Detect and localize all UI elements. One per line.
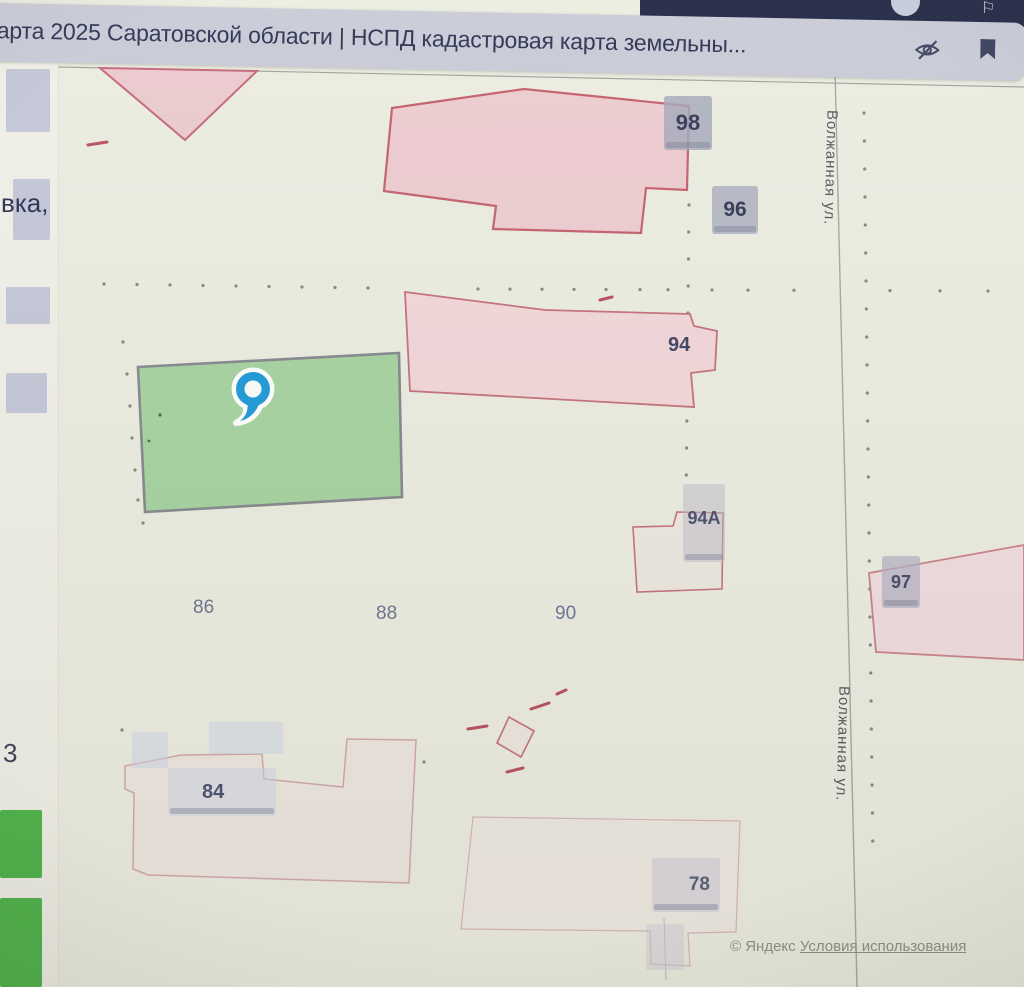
map-speck [148, 440, 151, 443]
tab-title: карта 2025 Саратовской области | НСПД ка… [0, 17, 877, 61]
panel-text-fragment: 3 [3, 738, 17, 769]
building-94a[interactable]: 94А [683, 484, 725, 562]
map-speck [158, 413, 161, 416]
panel-item-placeholder[interactable] [6, 69, 50, 132]
bookmark-icon[interactable] [980, 39, 995, 59]
building-84[interactable]: 84 [168, 768, 276, 816]
building-78[interactable]: 78 [652, 858, 720, 912]
building-96[interactable]: 96 [712, 186, 758, 234]
building-98[interactable]: 98 [664, 96, 712, 150]
panel-item-placeholder[interactable] [6, 373, 47, 413]
terms-link[interactable]: Условия использования [800, 938, 967, 955]
house-number: 78 [689, 874, 710, 896]
green-button[interactable] [0, 810, 42, 878]
house-number-94: 94 [668, 334, 690, 357]
flag-icon[interactable]: ⚐ [981, 0, 995, 17]
copyright-text: © Яндекс [730, 938, 796, 955]
building-97[interactable]: 97 [882, 556, 920, 608]
house-number: 94А [687, 508, 720, 529]
panel-text-fragment: вка, [1, 188, 48, 219]
green-button[interactable] [0, 898, 42, 987]
building-footprint [209, 722, 283, 754]
building-footprint [646, 924, 684, 970]
map-attribution: © Яндекс Условия использования [730, 938, 1024, 955]
house-number-88: 88 [376, 603, 397, 625]
house-number: 84 [202, 781, 224, 804]
house-number-86: 86 [193, 597, 214, 619]
street-label-volzhannaya-top: Волжанная ул. [820, 110, 840, 226]
hidden-eye-icon[interactable] [913, 39, 941, 62]
house-number-90: 90 [555, 603, 576, 625]
house-number: 98 [676, 110, 700, 136]
house-number: 96 [723, 198, 746, 222]
house-number: 97 [891, 572, 911, 593]
panel-item-placeholder[interactable] [6, 287, 50, 324]
building-footprint [132, 732, 168, 768]
street-label-volzhannaya-bottom: Волжанная ул. [832, 686, 852, 802]
map-canvas[interactable] [0, 0, 1024, 987]
